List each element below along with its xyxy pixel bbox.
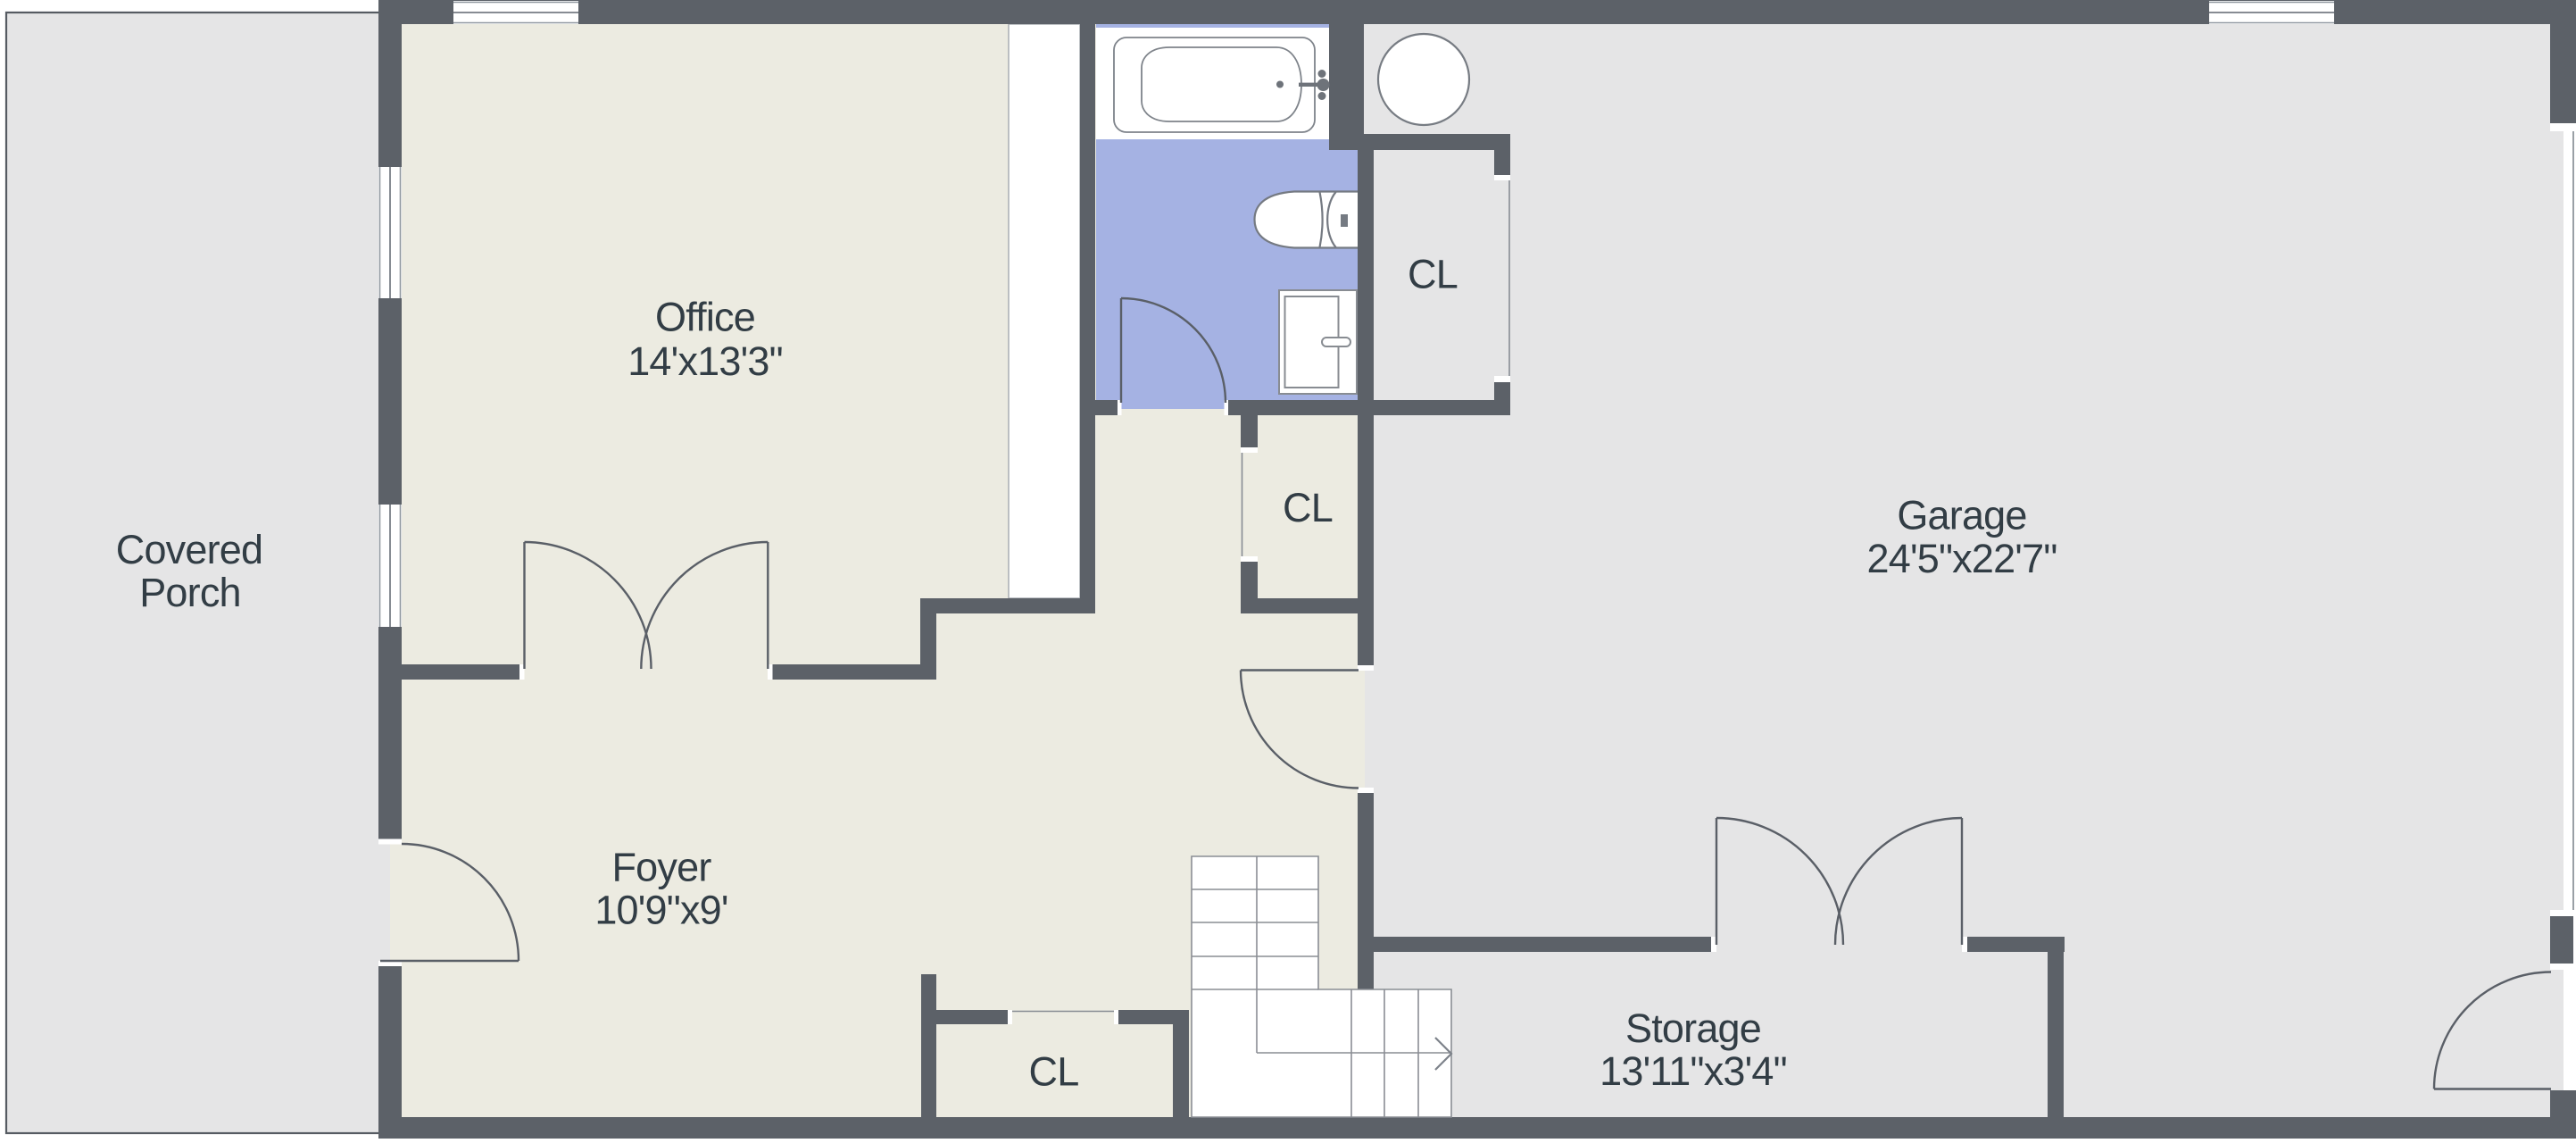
- svg-text:CL: CL: [1283, 485, 1333, 530]
- svg-text:14'x13'3": 14'x13'3": [627, 338, 783, 384]
- svg-text:Office: Office: [655, 295, 755, 340]
- svg-text:CL: CL: [1408, 252, 1458, 297]
- svg-text:Covered: Covered: [116, 527, 263, 572]
- svg-text:Foyer: Foyer: [611, 845, 711, 890]
- svg-text:Storage: Storage: [1625, 1005, 1761, 1051]
- svg-text:24'5"x22'7": 24'5"x22'7": [1867, 536, 2057, 581]
- svg-text:Garage: Garage: [1897, 493, 2026, 538]
- svg-text:10'9"x9': 10'9"x9': [594, 888, 727, 933]
- svg-text:Porch: Porch: [139, 570, 241, 615]
- svg-text:13'11"x3'4": 13'11"x3'4": [1600, 1048, 1787, 1094]
- svg-text:CL: CL: [1029, 1049, 1079, 1095]
